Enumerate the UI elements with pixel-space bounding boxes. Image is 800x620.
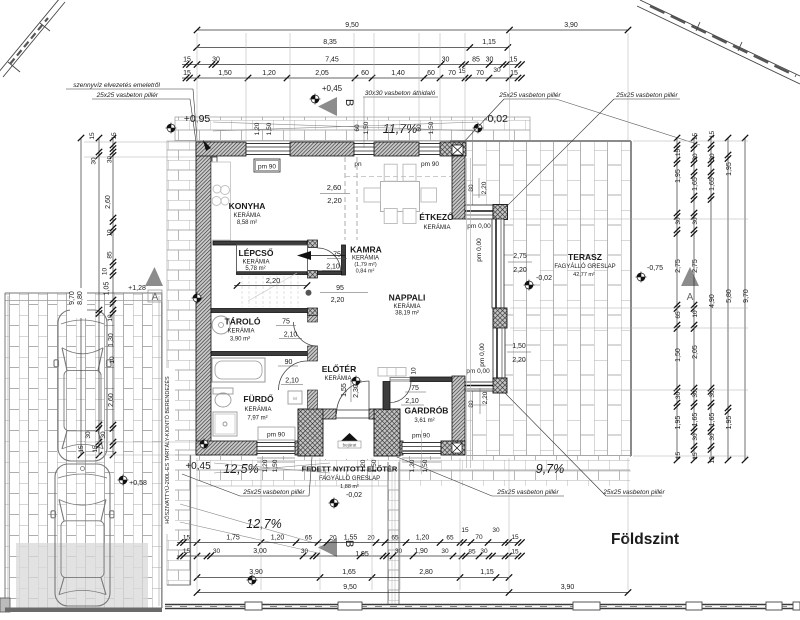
svg-text:30: 30 (85, 431, 92, 439)
svg-text:30: 30 (480, 548, 488, 555)
svg-text:1,15: 1,15 (482, 39, 496, 46)
svg-text:70: 70 (448, 70, 456, 77)
svg-text:+0,58: +0,58 (129, 480, 147, 487)
svg-text:1,95: 1,95 (675, 169, 682, 183)
svg-text:65: 65 (391, 535, 399, 542)
svg-text:2,20: 2,20 (513, 267, 527, 274)
svg-text:20: 20 (367, 535, 375, 542)
svg-text:2,20: 2,20 (512, 357, 526, 364)
svg-text:70: 70 (475, 534, 483, 541)
svg-text:1,95: 1,95 (726, 162, 733, 176)
svg-text:25x25 vasbeton pillér: 25x25 vasbeton pillér (242, 489, 305, 496)
svg-text:1,90: 1,90 (414, 548, 428, 555)
svg-text:2,20: 2,20 (327, 196, 342, 205)
svg-text:65: 65 (305, 535, 313, 542)
svg-text:15: 15 (709, 131, 716, 139)
svg-text:30: 30 (301, 548, 309, 555)
svg-text:1,95: 1,95 (726, 416, 733, 430)
svg-text:1,20: 1,20 (254, 122, 261, 135)
svg-text:75: 75 (411, 385, 419, 392)
svg-text:KERÁMIA: KERÁMIA (423, 224, 450, 231)
svg-text:7,45: 7,45 (325, 57, 339, 64)
svg-text:30: 30 (692, 433, 699, 441)
svg-text:1,05: 1,05 (104, 282, 111, 296)
svg-text:25x25 vasbeton pillér: 25x25 vasbeton pillér (602, 489, 665, 496)
svg-text:1,50: 1,50 (266, 122, 273, 135)
svg-text:A: A (687, 292, 694, 303)
svg-text:2,60: 2,60 (108, 393, 115, 407)
svg-text:1,50: 1,50 (675, 348, 682, 362)
svg-text:15: 15 (89, 132, 96, 140)
svg-text:1,20: 1,20 (409, 459, 416, 472)
svg-text:30: 30 (107, 156, 114, 164)
svg-text:1,50: 1,50 (371, 459, 378, 472)
svg-text:30: 30 (692, 390, 699, 398)
svg-text:2,20: 2,20 (482, 391, 489, 404)
svg-text:2,20: 2,20 (331, 297, 345, 304)
svg-text:15: 15 (692, 133, 699, 141)
svg-text:2,75: 2,75 (513, 253, 527, 260)
svg-text:0,84 m²: 0,84 m² (356, 269, 375, 275)
svg-text:25x25 vasbeton pillér: 25x25 vasbeton pillér (96, 92, 159, 99)
svg-text:KONYHA: KONYHA (229, 201, 266, 211)
svg-text:30: 30 (213, 548, 221, 555)
svg-text:85: 85 (468, 549, 476, 556)
svg-text:(1,79 m²): (1,79 m²) (354, 262, 376, 268)
svg-text:8,80: 8,80 (77, 291, 84, 305)
svg-text:pm 90: pm 90 (412, 433, 430, 440)
svg-text:90: 90 (285, 359, 293, 366)
svg-text:15: 15 (510, 57, 518, 64)
svg-text:LÉPCSŐ: LÉPCSŐ (239, 247, 274, 258)
svg-text:25x25 vasbeton pillér: 25x25 vasbeton pillér (615, 92, 678, 99)
svg-text:1,65: 1,65 (342, 569, 356, 576)
svg-text:-0,02: -0,02 (346, 492, 362, 499)
svg-text:FAGYÁLLÓ GRESLAP: FAGYÁLLÓ GRESLAP (319, 475, 380, 482)
svg-text:B: B (343, 99, 355, 106)
svg-text:30: 30 (709, 433, 716, 441)
svg-text:85: 85 (472, 57, 480, 64)
svg-text:1,20: 1,20 (271, 535, 285, 542)
svg-text:15: 15 (461, 527, 469, 534)
svg-text:NAPPALI: NAPPALI (389, 293, 426, 303)
svg-text:10: 10 (102, 268, 109, 276)
svg-text:60: 60 (416, 124, 423, 132)
svg-text:1,40: 1,40 (391, 70, 405, 77)
svg-text:-0,02: -0,02 (536, 275, 552, 282)
svg-text:30: 30 (100, 431, 107, 439)
svg-text:4,90: 4,90 (709, 294, 716, 308)
svg-text:2,30: 2,30 (353, 384, 360, 398)
svg-text:15: 15 (511, 534, 519, 541)
svg-text:1,50: 1,50 (272, 459, 279, 472)
svg-text:10: 10 (109, 356, 116, 364)
svg-text:80: 80 (468, 400, 475, 408)
svg-text:5,78 m²: 5,78 m² (245, 266, 265, 272)
svg-text:1,95: 1,95 (675, 416, 682, 430)
svg-text:30: 30 (395, 548, 403, 555)
svg-text:-0,75: -0,75 (647, 265, 663, 272)
svg-text:2,10: 2,10 (284, 332, 298, 339)
svg-text:KERÁMIA: KERÁMIA (393, 303, 420, 310)
svg-text:pm 90: pm 90 (421, 161, 439, 168)
svg-text:15: 15 (511, 549, 519, 556)
svg-text:1,65: 1,65 (692, 413, 699, 427)
svg-text:pm 0,00: pm 0,00 (476, 238, 483, 262)
svg-text:15: 15 (183, 535, 191, 542)
svg-text:pn: pn (354, 161, 362, 168)
svg-text:-0,02: -0,02 (484, 113, 508, 125)
svg-text:KERÁMIA: KERÁMIA (233, 212, 260, 219)
svg-text:A: A (152, 292, 159, 303)
svg-text:15: 15 (111, 132, 118, 140)
svg-text:9,50: 9,50 (345, 22, 359, 29)
svg-text:1,50: 1,50 (363, 121, 370, 134)
svg-text:15: 15 (92, 445, 99, 453)
svg-text:42,77 m²: 42,77 m² (573, 272, 595, 278)
svg-text:15: 15 (510, 70, 518, 77)
svg-text:M: M (293, 396, 297, 401)
svg-text:1,20: 1,20 (262, 459, 269, 472)
svg-text:1,20: 1,20 (262, 70, 276, 77)
svg-text:30: 30 (692, 153, 699, 161)
svg-text:3,90 m²: 3,90 m² (230, 337, 250, 343)
svg-text:1,65: 1,65 (709, 177, 716, 191)
svg-text:2,75: 2,75 (675, 259, 682, 273)
svg-text:15: 15 (709, 456, 716, 464)
svg-text:pm 90: pm 90 (267, 432, 285, 439)
svg-text:15: 15 (183, 57, 191, 64)
svg-text:30: 30 (709, 153, 716, 161)
svg-text:75: 75 (333, 252, 341, 259)
svg-text:38,19 m²: 38,19 m² (395, 311, 419, 317)
svg-text:KERÁMIA: KERÁMIA (227, 328, 254, 335)
svg-text:1,55: 1,55 (344, 535, 358, 542)
svg-text:15: 15 (675, 452, 682, 460)
svg-text:1,50: 1,50 (218, 70, 232, 77)
svg-text:1,20: 1,20 (416, 535, 430, 542)
svg-text:ELŐTÉR: ELŐTÉR (322, 363, 356, 374)
svg-text:bejárat: bejárat (343, 443, 358, 448)
svg-text:30: 30 (692, 217, 699, 225)
svg-text:60: 60 (354, 124, 361, 132)
svg-text:15: 15 (78, 445, 85, 453)
svg-text:85: 85 (107, 251, 114, 259)
svg-text:30: 30 (441, 548, 449, 555)
svg-text:10: 10 (107, 314, 114, 322)
svg-text:2,20: 2,20 (266, 276, 281, 285)
svg-text:12,7%: 12,7% (246, 517, 281, 531)
svg-text:9,50: 9,50 (343, 584, 357, 591)
svg-text:60: 60 (427, 70, 435, 77)
svg-text:pm 90: pm 90 (258, 164, 276, 171)
svg-text:8,35: 8,35 (323, 39, 337, 46)
svg-text:80: 80 (468, 184, 475, 192)
svg-text:2,10: 2,10 (326, 264, 340, 271)
svg-text:30: 30 (675, 217, 682, 225)
svg-text:2,60: 2,60 (327, 183, 342, 192)
svg-text:1,50: 1,50 (512, 343, 526, 350)
svg-text:FAGYÁLLÓ GRESLAP: FAGYÁLLÓ GRESLAP (554, 263, 615, 270)
svg-text:30: 30 (212, 57, 220, 64)
svg-text:1,20: 1,20 (360, 459, 367, 472)
svg-text:1,65: 1,65 (692, 177, 699, 191)
svg-text:GARDRÓB: GARDRÓB (405, 405, 449, 416)
svg-text:pm 0,00: pm 0,00 (479, 343, 486, 367)
svg-text:FÜRDŐ: FÜRDŐ (243, 393, 274, 404)
svg-text:8,58 m²: 8,58 m² (237, 220, 257, 226)
svg-text:20: 20 (329, 535, 337, 542)
svg-text:70: 70 (476, 70, 484, 77)
svg-text:30: 30 (91, 157, 98, 165)
svg-text:10: 10 (411, 367, 418, 375)
svg-text:9,70: 9,70 (69, 291, 76, 305)
svg-text:3,90: 3,90 (564, 22, 578, 29)
svg-text:1,15: 1,15 (480, 569, 494, 576)
svg-text:65: 65 (446, 535, 454, 542)
svg-text:3,61 m²: 3,61 m² (414, 418, 434, 424)
svg-text:1,50: 1,50 (428, 121, 435, 134)
svg-text:TÁROLÓ: TÁROLÓ (225, 316, 261, 327)
svg-text:30: 30 (442, 57, 450, 64)
svg-text:+0,45: +0,45 (185, 461, 211, 472)
svg-text:30: 30 (709, 390, 716, 398)
svg-text:60: 60 (361, 70, 369, 77)
svg-text:ÉTKEZŐ: ÉTKEZŐ (419, 211, 454, 222)
svg-text:2,10: 2,10 (285, 378, 299, 385)
svg-text:1,75: 1,75 (226, 535, 240, 542)
svg-text:25x25 vasbeton pillér: 25x25 vasbeton pillér (496, 489, 559, 496)
svg-text:HŐSZIVATTYÚ-200L-ES TARTÁLY-KI: HŐSZIVATTYÚ-200L-ES TARTÁLY-KIONTÓ BEREN… (164, 376, 171, 524)
svg-text:TERASZ: TERASZ (568, 252, 602, 262)
svg-text:1,65: 1,65 (709, 413, 716, 427)
svg-text:10: 10 (692, 310, 699, 318)
svg-text:3,90: 3,90 (561, 584, 575, 591)
svg-text:10: 10 (107, 229, 114, 237)
svg-text:KERÁMIA: KERÁMIA (242, 259, 269, 266)
svg-text:15: 15 (183, 548, 191, 555)
svg-text:25x25 vasbeton pillér: 25x25 vasbeton pillér (498, 92, 561, 99)
svg-text:1,30: 1,30 (108, 333, 115, 347)
svg-text:30: 30 (493, 67, 501, 74)
svg-text:15: 15 (675, 149, 682, 157)
svg-text:KERÁMIA: KERÁMIA (324, 375, 351, 382)
svg-text:9,70: 9,70 (743, 289, 750, 303)
svg-text:Földszint: Földszint (611, 531, 679, 548)
svg-text:75: 75 (282, 319, 290, 326)
svg-text:30x30 vasbeton áthidaló: 30x30 vasbeton áthidaló (365, 90, 436, 97)
svg-text:KERÁMIA: KERÁMIA (244, 406, 271, 413)
svg-text:FEDETT NYITOTT ELŐTÉR: FEDETT NYITOTT ELŐTÉR (302, 465, 398, 474)
svg-text:3,00: 3,00 (253, 548, 267, 555)
svg-text:2,10: 2,10 (405, 398, 419, 405)
svg-text:1,55: 1,55 (341, 383, 348, 397)
svg-text:1,50: 1,50 (422, 459, 429, 472)
svg-text:65: 65 (675, 311, 682, 319)
svg-text:+0,45: +0,45 (322, 84, 343, 93)
svg-text:+1,28: +1,28 (128, 285, 146, 292)
svg-text:2,05: 2,05 (315, 70, 329, 77)
svg-text:1,95: 1,95 (355, 551, 369, 558)
svg-text:KAMRA: KAMRA (350, 245, 382, 255)
svg-text:9,7%: 9,7% (536, 462, 565, 476)
svg-text:2,05: 2,05 (692, 345, 699, 359)
svg-text:30: 30 (492, 527, 500, 534)
svg-text:7,97 m²: 7,97 m² (247, 416, 267, 422)
svg-text:30: 30 (486, 57, 494, 64)
svg-text:2,20: 2,20 (481, 181, 488, 194)
svg-text:1,88 m²: 1,88 m² (340, 484, 359, 490)
svg-text:2,80: 2,80 (419, 569, 433, 576)
svg-text:95: 95 (336, 285, 344, 292)
svg-text:2,75: 2,75 (692, 259, 699, 273)
svg-text:30: 30 (675, 392, 682, 400)
svg-text:2,60: 2,60 (105, 195, 112, 209)
svg-text:szennyvíz elvezetés emeletről: szennyvíz elvezetés emeletről (73, 82, 160, 89)
svg-text:15: 15 (183, 70, 191, 77)
svg-text:pm 0,00: pm 0,00 (466, 368, 490, 375)
svg-text:KERÁMIA: KERÁMIA (352, 255, 379, 262)
svg-text:5,80: 5,80 (726, 289, 733, 303)
